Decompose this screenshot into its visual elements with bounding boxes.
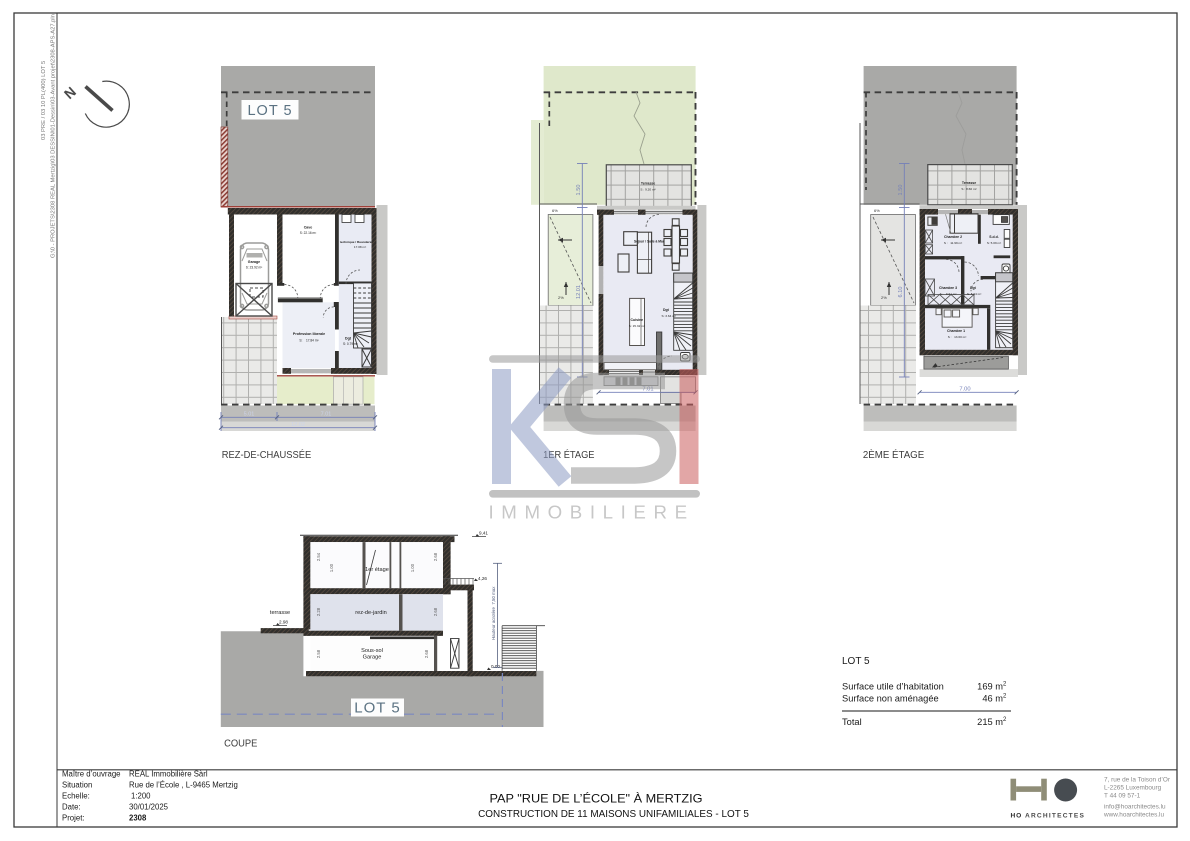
svg-text:Rue de l’École , L-9465 Mertzi: Rue de l’École , L-9465 Mertzig [129, 781, 238, 790]
svg-text:2: 2 [1003, 682, 1007, 688]
svg-text:12.02: 12.02 [291, 422, 305, 428]
svg-text:S : 8.60 m²: S : 8.60 m² [961, 187, 976, 191]
svg-text:PAP "RUE DE L’ÉCOLE" À MERTZIG: PAP "RUE DE L’ÉCOLE" À MERTZIG [490, 791, 703, 806]
svg-text:2.58: 2.58 [316, 649, 321, 658]
svg-text:2.98: 2.98 [279, 620, 288, 625]
svg-text:COUPE: COUPE [224, 739, 257, 750]
svg-text:Chambre 3: Chambre 3 [939, 286, 957, 290]
svg-text:Projet:: Projet: [62, 814, 85, 823]
svg-text:Garage: Garage [363, 655, 382, 661]
svg-text:7.00: 7.00 [959, 387, 970, 393]
svg-text:S: 5.04 m²: S: 5.04 m² [967, 292, 981, 296]
svg-text:REZ-DE-CHAUSSÉE: REZ-DE-CHAUSSÉE [222, 448, 312, 461]
svg-text:9,41: 9,41 [479, 531, 488, 536]
svg-text:REAL Immobilière Sàrl: REAL Immobilière Sàrl [129, 770, 208, 779]
svg-text:4,26: 4,26 [478, 576, 487, 581]
svg-text:S: 3.64 m²: S: 3.64 m² [662, 314, 676, 318]
svg-text:Chambre 2: Chambre 2 [944, 235, 962, 239]
svg-text:Cave: Cave [304, 226, 313, 230]
svg-text:LOT 5: LOT 5 [247, 103, 292, 119]
svg-text:5.01: 5.01 [244, 412, 255, 418]
svg-text:www.hoarchitectes.lu: www.hoarchitectes.lu [1103, 812, 1164, 819]
svg-text:12.01: 12.01 [576, 285, 582, 299]
svg-text:Terrasse: Terrasse [962, 181, 976, 185]
svg-text:S : 9.20 m²: S : 9.20 m² [640, 188, 655, 192]
svg-text:Situation: Situation [62, 781, 92, 790]
svg-text:S: 23.92 m²: S: 23.92 m² [246, 266, 262, 270]
svg-text:S: 22.16 m²: S: 22.16 m² [300, 231, 316, 235]
svg-text:Echelle:: Echelle: [62, 792, 90, 801]
svg-text:6.10: 6.10 [898, 287, 904, 298]
svg-text:1er étage: 1er étage [365, 567, 389, 573]
svg-text:Chambre 1: Chambre 1 [947, 329, 965, 333]
svg-text:2.54: 2.54 [316, 552, 321, 561]
svg-text:Date:: Date: [62, 803, 81, 812]
svg-text:T 44 09 57-1: T 44 09 57-1 [1104, 793, 1141, 800]
svg-text:S : 11.99 m²: S : 11.99 m² [944, 241, 962, 245]
svg-text:17.08 m²: 17.08 m² [354, 245, 366, 249]
svg-text:2.28: 2.28 [316, 607, 321, 616]
svg-text:1:200: 1:200 [131, 792, 151, 801]
svg-text:2ÈME ÉTAGE: 2ÈME ÉTAGE [863, 448, 924, 461]
svg-text:IMMOBILIERE: IMMOBILIERE [489, 502, 695, 523]
svg-text:2.68: 2.68 [433, 552, 438, 561]
svg-text:169 m: 169 m [977, 682, 1003, 692]
svg-text:S: 5.09 m²: S: 5.09 m² [987, 241, 1001, 245]
svg-text:Hauteur acrotère 7,50 max: Hauteur acrotère 7,50 max [491, 586, 496, 640]
svg-text:Sous-sol: Sous-sol [361, 648, 383, 654]
svg-text:S: 17.84 m²: S: 17.84 m² [299, 339, 318, 343]
svg-text:Garage: Garage [248, 260, 260, 264]
svg-text:46 m: 46 m [982, 694, 1003, 704]
svg-text:Dgt: Dgt [663, 308, 670, 312]
svg-text:Surface utile d’habitation: Surface utile d’habitation [842, 682, 944, 692]
svg-text:6%: 6% [552, 208, 558, 213]
svg-text:CONSTRUCTION DE 11 MAISONS UNI: CONSTRUCTION DE 11 MAISONS UNIFAMILIALES… [478, 809, 749, 820]
svg-text:2.68: 2.68 [424, 649, 429, 658]
svg-text:0.00: 0.00 [491, 664, 500, 669]
svg-text:LOT 5: LOT 5 [354, 700, 400, 717]
svg-text:2308: 2308 [129, 814, 147, 823]
svg-text:Terrasse: Terrasse [641, 182, 655, 186]
svg-text:rez-de-jardin: rez-de-jardin [355, 610, 386, 616]
svg-text:S.d.d.: S.d.d. [989, 235, 999, 239]
svg-text:S : 13.60 m²: S : 13.60 m² [948, 335, 967, 339]
svg-text:info@hoarchitectes.lu: info@hoarchitectes.lu [1104, 804, 1166, 811]
svg-text:technique / Buanderie: technique / Buanderie [340, 240, 373, 244]
svg-text:Maître d’ouvrage: Maître d’ouvrage [62, 770, 121, 779]
svg-text:S: 15.32 m²: S: 15.32 m² [629, 324, 645, 328]
svg-text:Dgt: Dgt [970, 286, 977, 290]
svg-text:30/01/2025: 30/01/2025 [129, 803, 169, 812]
svg-text:2%: 2% [881, 295, 887, 300]
svg-text:Total: Total [842, 717, 862, 727]
svg-text:2: 2 [1003, 717, 1007, 723]
svg-text:S: 0.79 m²: S: 0.79 m² [343, 342, 358, 346]
svg-text:1.50: 1.50 [576, 185, 582, 196]
svg-text:2.68: 2.68 [433, 607, 438, 616]
svg-text:G:\0 - PROJETS\2308 REAL Mertz: G:\0 - PROJETS\2308 REAL Mertzig\03 DESS… [51, 14, 57, 258]
svg-text:1.00: 1.00 [410, 563, 415, 572]
svg-text:Cuisine: Cuisine [630, 318, 643, 322]
svg-text:Profession liberale: Profession liberale [293, 332, 325, 336]
svg-text:7.01: 7.01 [321, 412, 332, 418]
svg-text:S : 9.61 m²: S : 9.61 m² [940, 292, 957, 296]
svg-text:2%: 2% [558, 295, 564, 300]
svg-text:03 PRE / 03 10 PL(400) LOT 5: 03 PRE / 03 10 PL(400) LOT 5 [41, 61, 47, 140]
svg-text:terrasse: terrasse [270, 610, 290, 616]
svg-text:HO ARCHITECTES: HO ARCHITECTES [1011, 813, 1086, 820]
svg-text:L-2265 Luxembourg: L-2265 Luxembourg [1104, 785, 1162, 792]
svg-text:2: 2 [1003, 694, 1007, 700]
svg-text:LOT 5: LOT 5 [842, 656, 870, 667]
svg-text:N: N [61, 83, 79, 102]
svg-text:6%: 6% [874, 208, 880, 213]
svg-text:Dgt: Dgt [345, 337, 352, 341]
svg-text:1.50: 1.50 [898, 185, 904, 196]
svg-text:Surface non aménagée: Surface non aménagée [842, 694, 939, 704]
svg-text:7, rue de la Toison d’Or: 7, rue de la Toison d’Or [1104, 777, 1171, 784]
svg-text:215 m: 215 m [977, 717, 1003, 727]
svg-text:1.00: 1.00 [329, 563, 334, 572]
